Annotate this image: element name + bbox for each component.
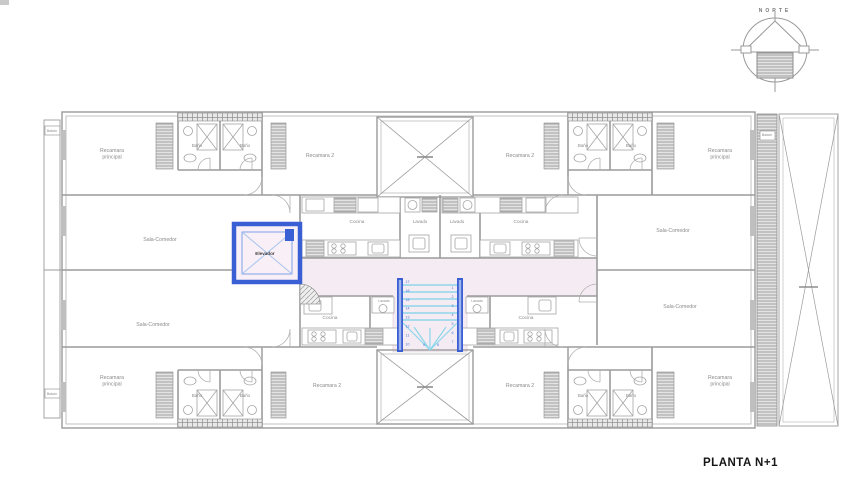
room-label: Baño: [578, 393, 589, 398]
stair-step-number: 10: [406, 342, 410, 346]
stair-step-number: 7: [452, 340, 454, 344]
room-label: Baño: [578, 143, 589, 148]
sink-icon: [574, 127, 583, 136]
void-right: [779, 114, 838, 426]
floor-plan-sheet: NORTE: [0, 0, 859, 477]
floor-plan-drawing: NORTE: [0, 0, 859, 477]
room-label: Baño: [240, 393, 251, 398]
plan-title: PLANTA N+1: [703, 457, 778, 469]
stair-step-number: 4: [452, 313, 454, 317]
north-compass: [731, 12, 819, 92]
stair-step-number: 13: [406, 316, 410, 320]
room-label: Baño: [626, 143, 637, 148]
room-label: Lavado: [471, 299, 483, 303]
stair-step-number: 16: [406, 289, 410, 293]
stove-icon: [308, 330, 336, 343]
sink-icon: [184, 406, 193, 415]
room-label: Cocina: [323, 315, 338, 321]
room-label: Recamara 2: [313, 383, 341, 389]
stair-step-number: 6: [452, 331, 454, 335]
toilet-icon: [574, 377, 586, 385]
void-top: [377, 117, 473, 197]
stove-icon: [328, 242, 356, 255]
room-label: Recamaraprincipal: [708, 375, 732, 387]
room-label: Balcón: [47, 392, 57, 396]
elevator-door: [285, 229, 294, 241]
room-label: Cocina: [350, 219, 365, 225]
room-label: Recamara 2: [506, 383, 534, 389]
room-label: Balcón: [47, 129, 57, 133]
balcony-left: [44, 120, 62, 418]
room-label: Balcón: [762, 133, 772, 137]
toilet-icon: [184, 154, 196, 162]
stove-icon: [524, 330, 552, 343]
room-label: Recamara 2: [506, 153, 534, 159]
sink-icon: [184, 127, 193, 136]
sink-icon: [638, 406, 647, 415]
stair-step-number: 17: [406, 280, 410, 284]
stove-icon: [522, 242, 550, 255]
room-label: Cocina: [519, 315, 534, 321]
toilet-icon: [634, 377, 646, 385]
room-label: Sala-Comedor: [663, 304, 697, 310]
stair-step-number: 2: [452, 295, 454, 299]
balcony-right-hatch: [757, 114, 777, 426]
room-label: Lavado: [378, 299, 390, 303]
stair-step-number: 1: [452, 286, 454, 290]
room-label: Recamara 2: [306, 153, 334, 159]
room-label: Sala-Comedor: [656, 228, 690, 234]
room-label: Baño: [626, 393, 637, 398]
toilet-icon: [574, 154, 586, 162]
elevator: Elevador: [234, 224, 300, 282]
stair-step-number: 14: [406, 307, 410, 311]
stair-step-number: 9: [423, 343, 425, 347]
sink-icon: [574, 406, 583, 415]
stair-step-number: 11: [406, 333, 410, 337]
room-label: Recamaraprincipal: [708, 148, 732, 160]
toilet-icon: [184, 377, 196, 385]
room-label: Recamaraprincipal: [100, 148, 124, 160]
scan-artifact: [0, 0, 9, 5]
stair-step-number: 8: [437, 343, 439, 347]
room-label: Recamaraprincipal: [100, 375, 124, 387]
sink-icon: [248, 406, 257, 415]
room-label: Baño: [240, 143, 251, 148]
room-label: Sala-Comedor: [143, 237, 177, 243]
sink-icon: [638, 127, 647, 136]
sink-icon: [248, 127, 257, 136]
room-label: Lavado: [413, 219, 428, 224]
room-label: Baño: [192, 393, 203, 398]
room-label: Cocina: [514, 219, 529, 225]
elevator-label: Elevador: [255, 251, 275, 256]
stair-step-number: 5: [452, 322, 454, 326]
toilet-icon: [244, 377, 256, 385]
stair-step-number: 12: [406, 325, 410, 329]
room-label: Baño: [192, 143, 203, 148]
stair-step-number: 3: [452, 304, 454, 308]
void-bottom: [377, 350, 473, 424]
room-label: Sala-Comedor: [136, 322, 170, 328]
stair-step-number: 15: [406, 298, 410, 302]
room-label: Lavado: [450, 219, 465, 224]
compass-label: NORTE: [759, 8, 792, 14]
